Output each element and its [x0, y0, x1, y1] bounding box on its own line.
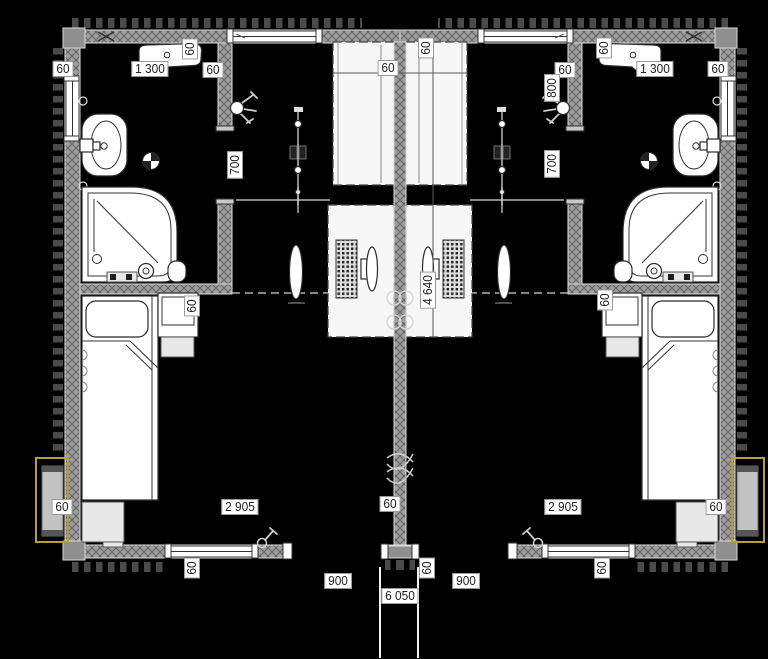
entrance-door-jamb	[283, 543, 292, 559]
wardrobe	[333, 42, 396, 185]
bath-wall-horizontal	[80, 284, 232, 294]
corner-block-top	[63, 28, 85, 48]
nightstand	[158, 293, 198, 357]
bath-partition-lower	[218, 202, 232, 293]
bed	[82, 296, 158, 547]
bath-partition-cap2	[216, 199, 234, 204]
outdoor-unit	[36, 458, 68, 542]
corner-block-bottom	[63, 541, 85, 560]
top-window	[227, 29, 322, 43]
bath-partition-upper	[218, 43, 232, 128]
side-window	[64, 76, 79, 141]
floor-plan-drawing	[0, 0, 768, 659]
sink	[80, 114, 127, 176]
center-tick-strip	[385, 560, 401, 570]
bottom-tick-strip	[68, 562, 168, 572]
left-unit	[36, 18, 401, 572]
right-unit	[399, 18, 764, 572]
bath-partition-cap	[216, 126, 234, 131]
floor-drain-icon	[143, 153, 160, 170]
wall-mixer-icon	[231, 92, 258, 123]
desk-workstation	[328, 205, 394, 337]
side-tick-strip	[53, 45, 63, 455]
vanity-counter	[139, 44, 202, 72]
centerline-cross	[236, 187, 330, 213]
top-tick-strip	[68, 18, 362, 28]
shower	[82, 187, 186, 282]
bottom-window	[165, 544, 258, 558]
floor-plan-stage: 601 30060606060700601 300606080070060604…	[0, 0, 768, 659]
chair	[288, 245, 305, 303]
